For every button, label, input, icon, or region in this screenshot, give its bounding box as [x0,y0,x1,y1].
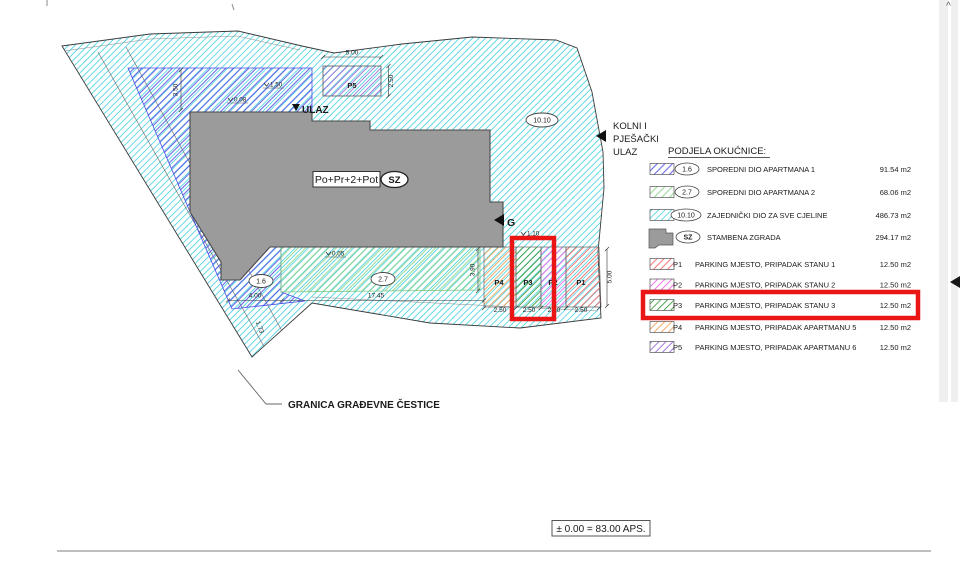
access-line-1: KOLNI I [613,121,647,132]
legend-row: P4 PARKING MJESTO, PRIPADAK APARTMANU 5 … [650,322,911,333]
document-viewport: P4 P3 P2 P1 P5 1.6 2.7 10.10 Po+Pr+2+Pot… [0,0,960,564]
legend-area: 12.50 m2 [880,280,911,289]
stall-p3-label: P3 [523,278,532,287]
legend-code: 10.10 [677,213,695,220]
legend-row: SZ STAMBENA ZGRADA 294.17 m2 [649,229,911,248]
legend-label: ZAJEDNIČKI DIO ZA SVE CJELINE [707,211,827,220]
legend-row: 1.6 SPOREDNI DIO APARTMANA 1 91.54 m2 [650,163,911,175]
legend-label: SPOREDNI DIO APARTMANA 1 [707,165,815,174]
gas-label: G [507,217,515,229]
legend-row: P5 PARKING MJESTO, PRIPADAK APARTMANU 6 … [650,342,911,353]
access-marker: KOLNI I PJEŠAČKI ULAZ [596,121,659,158]
legend-swatch-p1 [650,259,674,270]
legend-code: 2.7 [682,190,692,197]
legend-swatch-p2 [650,279,674,290]
legend-swatch-common [650,210,674,221]
stall-p3 [516,247,541,307]
legend-row: P2 PARKING MJESTO, PRIPADAK STANU 2 12.5… [650,279,911,290]
boundary-callout: GRANICA GRAĐEVNE ČESTICE [238,370,440,411]
dim-p5-width: 5.00 [346,50,359,57]
scrollbar-track[interactable] [939,0,948,402]
badge-apartment2: 2.7 [378,277,388,284]
dim-p5-depth: 2.50 [388,74,395,87]
boundary-label: GRANICA GRAĐEVNE ČESTICE [288,398,440,411]
building-label: Po+Pr+2+Pot SZ [313,172,408,188]
legend-swatch-apartment1 [650,164,674,175]
dim-stall-width-1: 2.50 [494,307,507,314]
site-plan-drawing: P4 P3 P2 P1 P5 1.6 2.7 10.10 Po+Pr+2+Pot… [0,0,960,564]
level-band: 1.50 [270,82,283,89]
dim-stall-width-2: 2.50 [523,307,536,314]
legend-row: P1 PARKING MJESTO, PRIPADAK STANU 1 12.5… [650,259,911,270]
access-line-2: PJEŠAČKI [613,134,659,145]
legend-label: STAMBENA ZGRADA [707,233,781,242]
badge-common: 10.10 [533,118,551,125]
legend-swatch-p5 [650,342,674,353]
building-floors-label: Po+Pr+2+Pot [315,174,378,186]
legend-area: 68.06 m2 [880,188,911,197]
legend-code: P1 [673,260,682,269]
level-entrance: 0.08 [234,97,247,104]
legend-row: 2.7 SPOREDNI DIO APARTMANA 2 68.06 m2 [650,186,911,198]
dim-green-length: 17.45 [368,293,385,300]
dim-stall-width-4: 2.50 [575,307,588,314]
dim-green-height: 3.90 [470,263,477,276]
stall-p4-label: P4 [494,278,504,287]
legend-swatch-apartment2 [650,187,674,198]
legend-label: PARKING MJESTO, PRIPADAK STANU 2 [695,280,835,289]
legend-code: P5 [673,343,682,352]
legend: PODJELA OKUĆNICE: 1.6 SPOREDNI DIO APART… [649,146,911,353]
legend-label: PARKING MJESTO, PRIPADAK STANU 1 [695,260,835,269]
legend-swatch-p4 [650,322,674,333]
legend-area: 294.17 m2 [876,233,911,242]
building-code-label: SZ [388,175,400,186]
legend-swatch-p3 [650,300,674,311]
legend-row-highlighted: P3 PARKING MJESTO, PRIPADAK STANU 3 12.5… [650,300,911,311]
mouse-cursor-icon [950,276,960,288]
access-line-3: ULAZ [613,147,637,158]
legend-label: PARKING MJESTO, PRIPADAK APARTMANU 5 [695,323,856,332]
legend-title: PODJELA OKUĆNICE: [668,146,766,157]
legend-code: P3 [673,301,682,310]
legend-area: 91.54 m2 [880,165,911,174]
stall-p1 [566,247,601,307]
datum-text: ± 0.00 = 83.00 APS. [556,524,645,535]
dim-stall-depth: 5.00 [607,270,614,283]
legend-code: P2 [673,280,682,289]
datum-note: ± 0.00 = 83.00 APS. [552,521,650,537]
level-green: 0.05 [332,251,345,258]
parking-stalls [484,247,601,307]
dim-blue-length: 4.00 [249,293,262,300]
legend-area: 12.50 m2 [880,323,911,332]
legend-code: P4 [673,323,682,332]
stall-p1-label: P1 [576,278,585,287]
crop-ticks [47,0,234,10]
scrollbar-thumb[interactable] [951,0,958,402]
legend-area: 12.50 m2 [880,260,911,269]
entrance-label: ULAZ [302,105,329,116]
legend-code: SZ [684,235,694,242]
legend-area: 12.50 m2 [880,301,911,310]
legend-row: 10.10 ZAJEDNIČKI DIO ZA SVE CJELINE 486.… [650,209,911,221]
legend-area: 486.73 m2 [876,211,911,220]
legend-label: SPOREDNI DIO APARTMANA 2 [707,188,815,197]
legend-label: PARKING MJESTO, PRIPADAK STANU 3 [695,301,835,310]
legend-code: 1.6 [682,167,692,174]
scroll-up-icon: ^ [946,1,951,12]
stall-p5-label: P5 [347,81,356,90]
scroll-up-button[interactable]: ^ [939,0,958,15]
legend-label: PARKING MJESTO, PRIPADAK APARTMANU 6 [695,343,856,352]
legend-area: 12.50 m2 [880,343,911,352]
legend-swatch-building [649,229,673,248]
badge-apartment1: 1.6 [256,279,266,286]
dim-band-height: 3.50 [173,83,180,96]
